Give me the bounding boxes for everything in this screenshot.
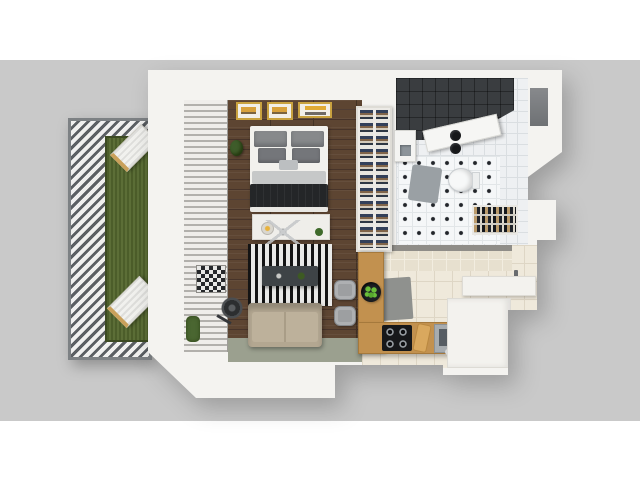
moss-plant xyxy=(186,316,200,342)
peninsula-counter xyxy=(462,276,536,296)
checker-mosaic-panel xyxy=(196,265,226,293)
bar-stool xyxy=(334,280,356,300)
bed-pillow xyxy=(291,131,324,147)
floor-fan xyxy=(220,296,244,320)
wall-art-frame xyxy=(267,102,293,120)
shoe-rack xyxy=(472,205,518,235)
bed-pillow xyxy=(254,131,287,147)
bar-stool xyxy=(334,306,356,326)
floor-plan-render xyxy=(0,0,640,480)
ceiling-lamp xyxy=(258,220,308,244)
vessel-sink xyxy=(450,130,461,141)
apartment-walls xyxy=(148,70,562,398)
bed-throw-blanket xyxy=(250,184,328,208)
vessel-sink xyxy=(450,143,461,154)
sofa xyxy=(248,303,322,347)
wardrobe-shelf-column xyxy=(360,110,373,248)
cooktop xyxy=(382,325,412,351)
coffee-table xyxy=(262,266,318,286)
wall-art-frame xyxy=(236,102,262,120)
double-bed xyxy=(250,126,328,210)
bed-duvet xyxy=(252,171,326,184)
bath-mat xyxy=(408,164,443,204)
toilet xyxy=(448,168,474,192)
bed-tray xyxy=(279,160,298,170)
apartment-envelope xyxy=(148,70,562,398)
kitchen-cabinet-block xyxy=(447,298,511,368)
corner-plant xyxy=(230,140,243,156)
bed-footboard xyxy=(250,207,328,212)
wardrobe-shelf-column xyxy=(376,110,389,248)
toilet-tank xyxy=(472,172,480,189)
desk-plant xyxy=(315,228,323,236)
wall-art-row xyxy=(236,102,332,120)
wall-niche xyxy=(530,88,548,126)
washing-machine xyxy=(394,130,416,162)
fruit-bowl xyxy=(361,282,381,302)
open-wardrobe xyxy=(356,106,392,252)
wall-art-frame xyxy=(298,102,332,118)
